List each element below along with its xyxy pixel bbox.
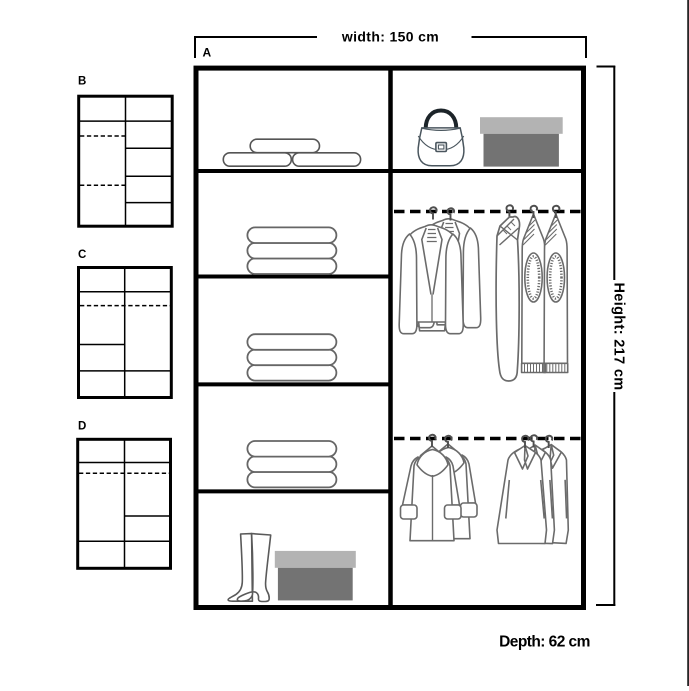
svg-text:C: C xyxy=(78,249,86,261)
svg-text:width: 150 cm: width: 150 cm xyxy=(341,29,439,45)
svg-text:Height: 217 cm: Height: 217 cm xyxy=(611,282,627,390)
svg-text:B: B xyxy=(78,76,86,88)
svg-text:D: D xyxy=(78,421,86,433)
svg-text:A: A xyxy=(203,46,212,60)
svg-text:Depth: 62 cm: Depth: 62 cm xyxy=(499,634,590,651)
